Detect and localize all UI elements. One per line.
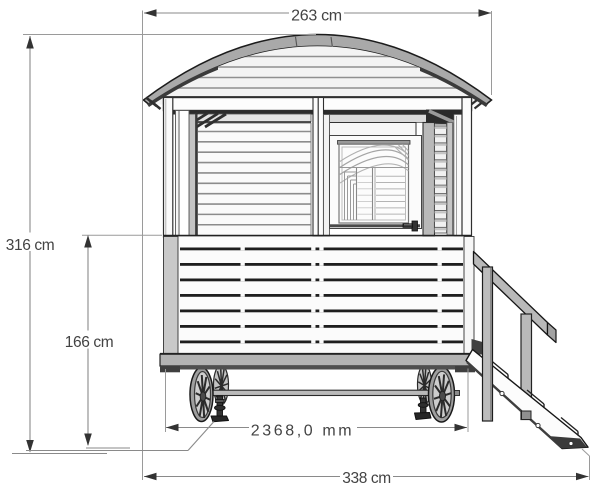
svg-text:338 cm: 338 cm [342,470,390,487]
svg-text:166 cm: 166 cm [65,334,113,351]
svg-text:263 cm: 263 cm [291,8,342,25]
svg-text:316 cm: 316 cm [6,237,54,254]
svg-text:2368,0 mm: 2368,0 mm [251,423,354,440]
